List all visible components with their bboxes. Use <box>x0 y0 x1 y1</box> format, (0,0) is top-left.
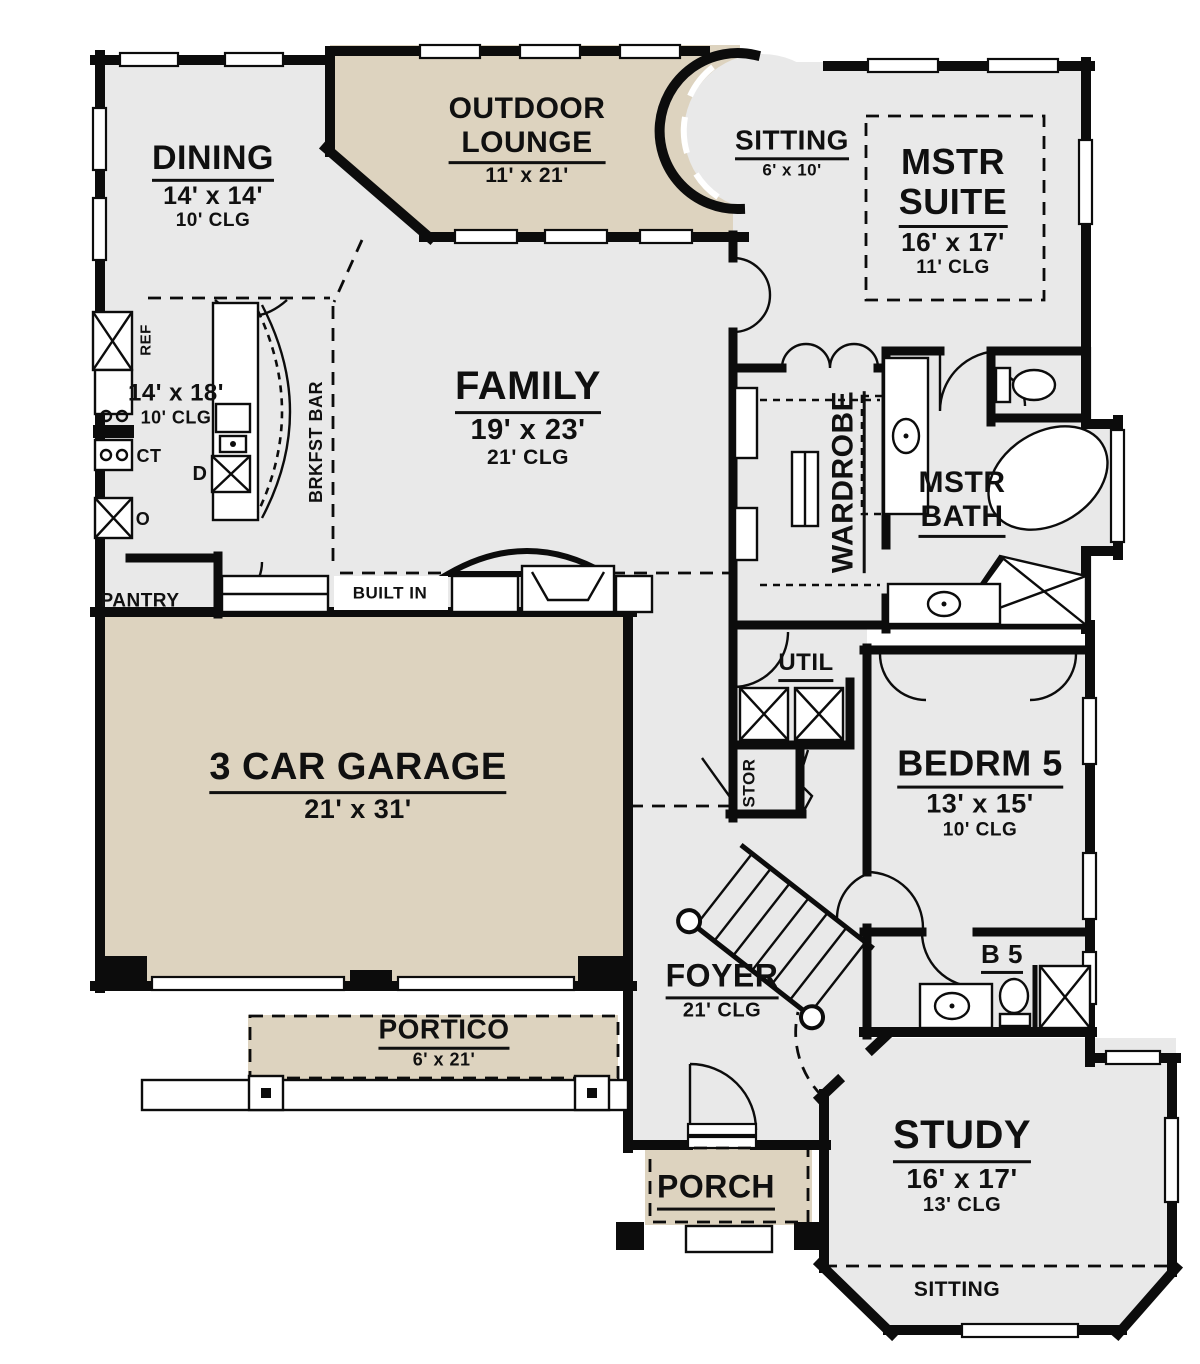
garage-door <box>398 977 574 990</box>
room-dims: 19' x 23' <box>455 414 601 446</box>
room-label-mstr-suite: MSTR SUITE 16' x 17' 11' CLG <box>899 142 1008 278</box>
room-name: LOUNGE <box>449 126 606 165</box>
toilet-tank <box>1000 1014 1030 1026</box>
room-name: WARDROBE <box>827 391 866 573</box>
annotation-ref: REF <box>139 324 156 356</box>
porch-step <box>686 1226 772 1252</box>
room-dims: 16' x 17' <box>893 1163 1031 1194</box>
fireplace <box>522 566 614 612</box>
garage-door <box>152 977 344 990</box>
turret-window <box>684 117 687 153</box>
room-dims: 13' x 15' <box>897 789 1063 819</box>
room-label-bedrm5: BEDRM 5 13' x 15' 10' CLG <box>897 744 1063 841</box>
room-name: SITTING <box>914 1278 1000 1302</box>
room-name: FAMILY <box>455 364 601 414</box>
room-name: MSTR <box>919 466 1006 500</box>
toilet <box>1000 979 1028 1013</box>
counter <box>95 370 132 414</box>
room-ceiling: 10' CLG <box>152 210 274 231</box>
annotation-built-in: BUILT IN <box>353 583 428 602</box>
room-label-wardrobe: WARDROBE <box>827 391 866 573</box>
room-label-b5: B 5 <box>981 940 1023 974</box>
room-label-sitting-turret: SITTING 6' x 10' <box>735 124 849 179</box>
room-label-portico: PORTICO 6' x 21' <box>378 1014 509 1071</box>
room-name: PORTICO <box>378 1014 509 1050</box>
room-ceiling: 11' CLG <box>899 257 1008 278</box>
room-dims: 16' x 17' <box>899 228 1008 257</box>
room-name: PORCH <box>657 1170 775 1211</box>
room-dims: 14' x 18' <box>128 380 224 407</box>
room-name: OUTDOOR <box>449 92 606 126</box>
room-label-stor: STOR <box>739 759 758 808</box>
room-label-sitting-bay: SITTING <box>914 1278 1000 1302</box>
room-label-garage: 3 CAR GARAGE 21' x 31' <box>209 746 506 824</box>
room-dims: 21' x 31' <box>209 794 506 824</box>
room-dims: 6' x 10' <box>735 161 849 180</box>
room-label-family: FAMILY 19' x 23' 21' CLG <box>455 364 601 470</box>
room-name: 3 CAR GARAGE <box>209 746 506 794</box>
room-name: STOR <box>739 759 758 808</box>
room-label-study: STUDY 16' x 17' 13' CLG <box>893 1113 1031 1217</box>
room-label-foyer: FOYER 21' CLG <box>666 958 779 1021</box>
floor-plan-page: DINING 14' x 14' 10' CLG OUTDOOR LOUNGE … <box>0 0 1200 1364</box>
room-ceiling: 10' CLG <box>897 819 1063 840</box>
room-label-porch: PORCH <box>657 1170 775 1211</box>
built-in-cabinet <box>616 576 652 612</box>
room-name: FOYER <box>666 958 779 999</box>
room-label-dining: DINING 14' x 14' 10' CLG <box>152 139 274 231</box>
room-label-outdoor-lounge: OUTDOOR LOUNGE 11' x 21' <box>449 92 606 188</box>
room-name: UTIL <box>778 650 833 682</box>
room-dims: 11' x 21' <box>449 164 606 188</box>
room-ceiling: 10' CLG <box>128 407 224 427</box>
porch-post <box>616 1222 644 1250</box>
room-name: MSTR <box>899 142 1008 182</box>
room-label-kitchen: 14' x 18' 10' CLG <box>128 380 224 427</box>
porch-post <box>794 1222 822 1250</box>
annotation-oven: O <box>136 509 151 529</box>
room-name: BATH <box>919 500 1006 539</box>
toilet <box>1013 370 1055 400</box>
room-label-mstr-bath: MSTR BATH <box>919 466 1006 538</box>
room-name: B 5 <box>981 940 1023 974</box>
room-name: DINING <box>152 139 274 182</box>
annotation-brkfst-bar: BRKFST BAR <box>306 381 326 503</box>
annotation-pantry: PANTRY <box>101 590 180 611</box>
room-ceiling: 21' CLG <box>455 446 601 470</box>
annotation-ct: CT <box>137 446 162 466</box>
room-name: SITTING <box>735 124 849 160</box>
room-ceiling: 13' CLG <box>893 1194 1031 1216</box>
room-ceiling: 21' CLG <box>666 999 779 1021</box>
closet-rod <box>735 508 757 560</box>
annotation-dishwasher: D <box>193 463 208 485</box>
room-dims: 6' x 21' <box>378 1050 509 1070</box>
room-name: SUITE <box>899 182 1008 227</box>
room-name: BEDRM 5 <box>897 744 1063 789</box>
room-label-util: UTIL <box>778 650 833 682</box>
room-dims: 14' x 14' <box>152 182 274 210</box>
closet-rod <box>735 388 757 458</box>
room-name: STUDY <box>893 1113 1031 1163</box>
built-in-cabinet <box>452 576 518 612</box>
toilet-tank <box>996 368 1010 402</box>
